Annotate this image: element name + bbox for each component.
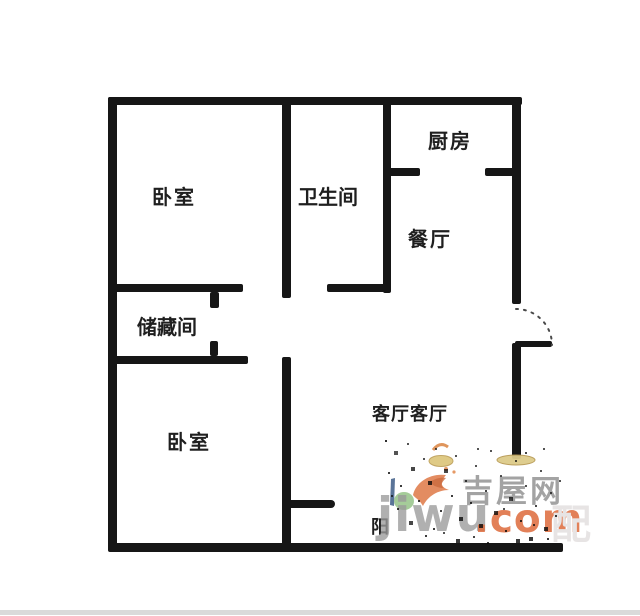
entry-door-arc: [505, 300, 569, 360]
room-label-bedroom-1: 卧室: [152, 187, 196, 207]
storage-north-wall: [108, 284, 243, 292]
bathroom-south-wall: [327, 284, 391, 292]
bedroom2-living-wall: [282, 357, 291, 548]
room-label-storage: 储藏间: [137, 317, 197, 337]
left-wall: [108, 97, 117, 551]
bedroom1-bathroom-wall: [282, 97, 291, 298]
room-label-living: 客厅客厅: [372, 406, 448, 424]
storage-north-door-jamb: [210, 292, 219, 308]
balcony-door-jamb: [291, 500, 335, 508]
room-label-bathroom: 卫生间: [298, 187, 358, 207]
floorplan-canvas: 卧室 卫生间 厨房 餐厅 储藏间 卧室 客厅客厅 阳 吉屋网 jiwu .com…: [0, 0, 640, 616]
bathroom-kitchen-wall: [383, 97, 391, 293]
page-edge-band: [0, 610, 640, 615]
storage-south-door-jamb: [210, 341, 218, 356]
watermark-outline-char: 配: [551, 505, 591, 545]
room-label-kitchen: 厨房: [428, 131, 472, 151]
room-label-dining: 餐厅: [408, 229, 452, 249]
room-label-bedroom-2: 卧室: [167, 432, 211, 452]
kitchen-south-wall-left: [383, 168, 420, 176]
watermark-speckles: [385, 440, 387, 442]
storage-south-wall: [108, 356, 248, 364]
kitchen-south-wall-right: [485, 168, 521, 176]
right-wall-upper: [512, 97, 521, 304]
top-wall: [108, 97, 522, 105]
